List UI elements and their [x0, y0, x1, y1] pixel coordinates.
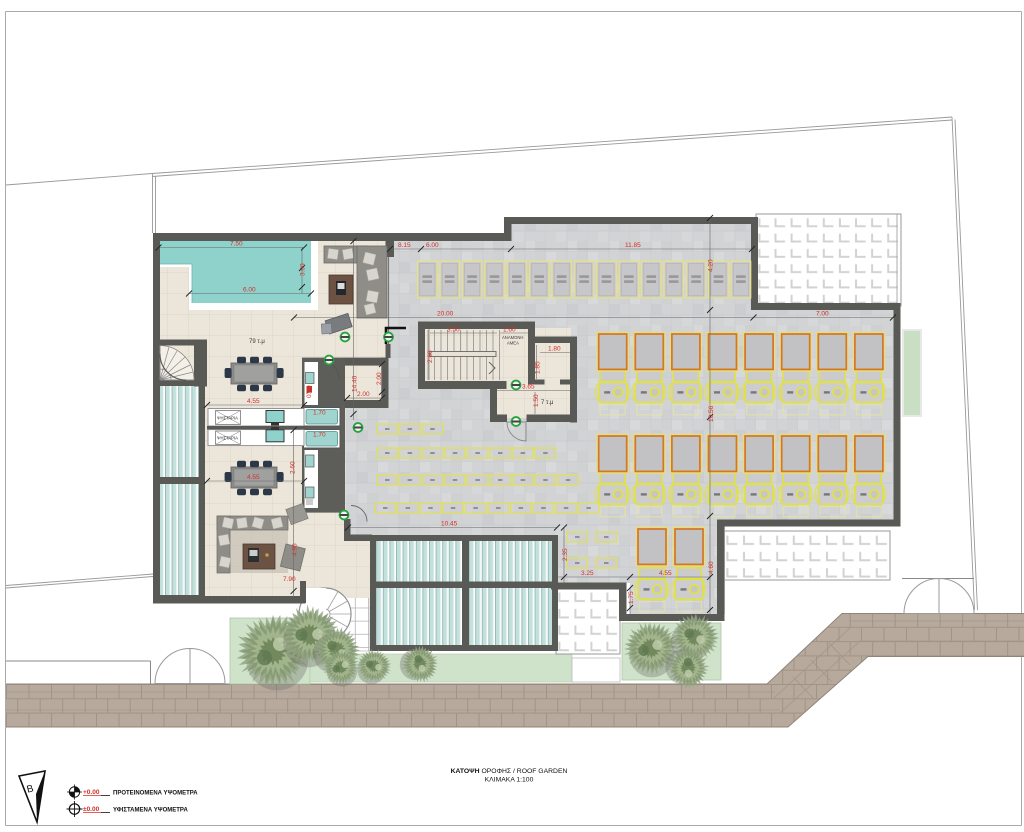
svg-text:1.70: 1.70	[313, 410, 326, 417]
svg-text:4.20: 4.20	[708, 259, 715, 272]
svg-text:14.40: 14.40	[352, 375, 359, 392]
svg-text:10.45: 10.45	[441, 521, 458, 528]
svg-text:6.00: 6.00	[426, 242, 439, 249]
svg-text:4.55: 4.55	[247, 398, 260, 405]
svg-text:ΚΛΙΜΑΚΑ 1:100: ΚΛΙΜΑΚΑ 1:100	[485, 777, 534, 784]
svg-text:ΑΝΑΜΟΝΗ: ΑΝΑΜΟΝΗ	[502, 335, 523, 340]
svg-text:+0.00: +0.00	[83, 789, 100, 796]
svg-text:±0.00: ±0.00	[83, 806, 100, 813]
svg-text:ΨΗΣΤΑΡΙΑ: ΨΗΣΤΑΡΙΑ	[217, 436, 238, 441]
svg-text:79 τ.μ: 79 τ.μ	[249, 339, 265, 345]
svg-text:1.80: 1.80	[548, 346, 561, 353]
svg-text:3.50: 3.50	[447, 327, 460, 334]
svg-text:4.55: 4.55	[247, 474, 260, 481]
svg-text:ΥΦΙΣΤΑΜΕΝΑ ΥΨΟΜΕΤΡΑ: ΥΦΙΣΤΑΜΕΝΑ ΥΨΟΜΕΤΡΑ	[113, 808, 188, 814]
svg-text:2.00: 2.00	[357, 391, 370, 398]
svg-text:1.60: 1.60	[503, 327, 516, 334]
svg-text:3.25: 3.25	[581, 570, 594, 577]
svg-text:2.00: 2.00	[376, 372, 383, 385]
svg-text:ΚΑΤΟΨΗ ΟΡΟΦΗΣ / ROOF GARDEN: ΚΑΤΟΨΗ ΟΡΟΦΗΣ / ROOF GARDEN	[451, 768, 568, 775]
svg-text:8.15: 8.15	[398, 242, 411, 249]
svg-text:3.00: 3.00	[300, 263, 307, 276]
svg-text:7.00: 7.00	[816, 311, 829, 318]
svg-text:ΨΗΣΤΑΡΙΑ: ΨΗΣΤΑΡΙΑ	[217, 416, 238, 421]
svg-text:6.00: 6.00	[243, 287, 256, 294]
svg-text:1.85: 1.85	[535, 361, 542, 374]
svg-text:4.55: 4.55	[659, 570, 672, 577]
svg-text:3.65: 3.65	[522, 384, 535, 391]
svg-text:20.00: 20.00	[437, 311, 454, 318]
svg-text:1.70: 1.70	[313, 432, 326, 439]
svg-text:7.90: 7.90	[283, 576, 296, 583]
svg-text:2.35: 2.35	[562, 548, 569, 561]
svg-text:1.75: 1.75	[628, 591, 635, 604]
svg-text:2.60: 2.60	[427, 350, 434, 363]
svg-text:4.60: 4.60	[708, 561, 715, 574]
svg-text:10.56: 10.56	[708, 405, 715, 422]
svg-text:2.60: 2.60	[290, 461, 297, 474]
svg-text:4.95: 4.95	[292, 543, 299, 556]
svg-text:11.85: 11.85	[625, 242, 641, 249]
svg-text:ΑΜΕΑ: ΑΜΕΑ	[507, 341, 519, 346]
svg-text:0.90: 0.90	[306, 385, 313, 398]
svg-text:7.50: 7.50	[230, 241, 243, 248]
svg-text:1.50: 1.50	[533, 394, 540, 407]
svg-text:7 τ.μ: 7 τ.μ	[541, 400, 554, 406]
svg-text:ΠΡΟΤΕΙΝΟΜΕΝΑ ΥΨΟΜΕΤΡΑ: ΠΡΟΤΕΙΝΟΜΕΝΑ ΥΨΟΜΕΤΡΑ	[113, 791, 198, 797]
